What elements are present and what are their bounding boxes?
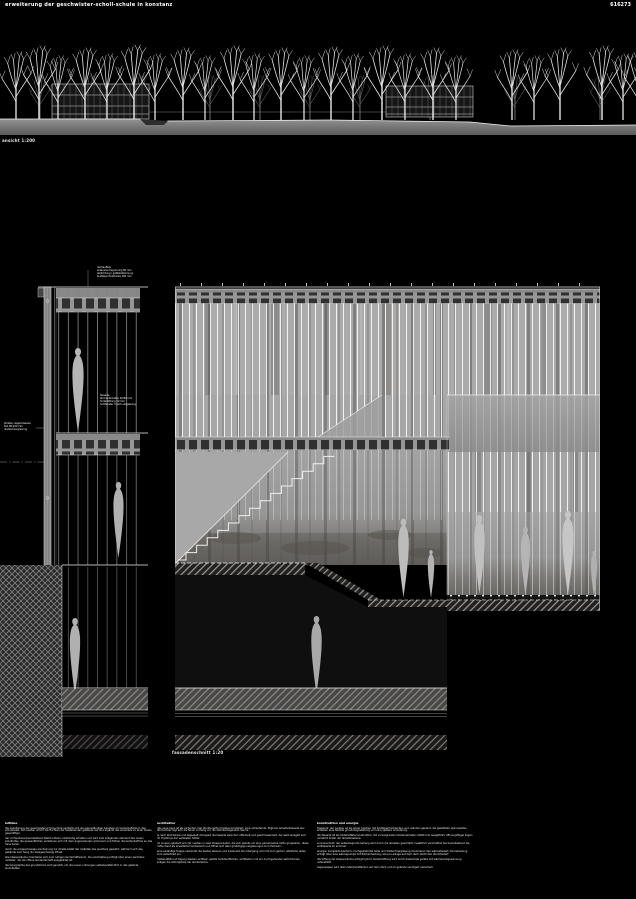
tick-strip — [447, 595, 600, 600]
page-title: erweiterung der geschwister-scholl-schul… — [5, 2, 173, 8]
annotation-line: brettsperrholzdecke 180 mm — [97, 275, 151, 278]
body-paragraph: die lüftung der klassenräume erfolgt hyb… — [317, 859, 475, 865]
column-heading: architektur — [157, 821, 309, 825]
annotation-line: dreifachverglasung — [4, 428, 46, 431]
body-paragraph: die erweiterung der geschwister-scholl-s… — [5, 828, 153, 837]
text-column-architecture: architektur das neue haus ist als einfac… — [157, 821, 309, 897]
annotation-facade: fassadelärchenlamellen 40/60 mmhinterlüf… — [100, 394, 150, 406]
column-heading: konstruktion und energie — [317, 821, 475, 825]
timber-slats-upper — [58, 312, 140, 433]
column-heading: leitidee — [5, 821, 153, 825]
body-paragraph: energie: kompakte bauform, hochgedämmte … — [317, 851, 475, 857]
site-elevation-label: ansicht 1:200 — [2, 138, 35, 143]
body-paragraph: alle klassenräume orientieren sich zum r… — [5, 857, 153, 863]
timber-slats-lower — [58, 455, 140, 565]
facade-field-mid — [175, 395, 447, 437]
body-paragraph: die topographie des grundstücks wird gen… — [5, 865, 153, 871]
site-ground — [0, 119, 636, 135]
facade-section-label: fassadenschnitt 1:20 — [172, 750, 223, 755]
earth-crosshatch — [0, 565, 62, 757]
body-paragraph: durch die eingeschossige erscheinung zur… — [5, 849, 153, 855]
body-paragraph: regenwasser wird über retentionsflächen … — [317, 867, 475, 870]
body-paragraph: der vorhandene baumbestand bleibt nahezu… — [5, 838, 153, 847]
floor-slab — [56, 433, 148, 455]
detail-section-drawing — [0, 268, 170, 768]
foundation-band — [175, 688, 447, 750]
forest-field-right — [447, 452, 600, 512]
body-paragraph: tragwerk: der neubau ist als reiner holz… — [317, 828, 475, 834]
body-paragraph: das neue haus ist als einfacher, klar st… — [157, 828, 309, 834]
ground-mass — [175, 575, 447, 688]
annotation-line: holzfenster 3-fach-verglasung — [100, 403, 150, 406]
facade-field-upper — [175, 304, 600, 396]
annotation-roof: dachaufbauextensive begrünung 80 mmabdic… — [97, 266, 151, 278]
competition-board: erweiterung der geschwister-scholl-schul… — [0, 0, 636, 899]
competition-code: 616273 — [610, 2, 631, 8]
body-paragraph: im inneren gliedert sich der neubau in z… — [157, 843, 309, 849]
person-silhouette — [428, 550, 434, 598]
body-paragraph: die fassade ist als hinterlüftete konstr… — [317, 835, 475, 841]
concrete-panel — [447, 395, 600, 452]
text-column-construction: konstruktion und energie tragwerk: der n… — [317, 821, 475, 897]
site-elevation-drawing — [0, 40, 636, 140]
text-column-concept: leitidee die erweiterung der geschwister… — [5, 821, 153, 897]
body-paragraph: eine einläufige treppe verbindet die bei… — [157, 851, 309, 857]
floor-slab-band — [175, 437, 450, 450]
facade-section-drawing — [175, 283, 600, 758]
column-body: das neue haus ist als einfacher, klar st… — [157, 828, 309, 866]
column-body: die erweiterung der geschwister-scholl-s… — [5, 828, 153, 871]
annotation-mullion: pfosten-riegel-fassadebsh 80/240 mmdreif… — [4, 422, 46, 431]
foundation-slab — [62, 688, 148, 749]
body-paragraph: sonnenschutz: der außenliegende behang w… — [317, 843, 475, 849]
body-paragraph: materialität und fügung bleiben sichtbar… — [157, 859, 309, 865]
column-body: tragwerk: der neubau ist als reiner holz… — [317, 828, 475, 871]
roof-slab-band — [175, 289, 600, 304]
body-paragraph: je nach blickwinkel und tageszeit changi… — [157, 835, 309, 841]
person-silhouette — [398, 519, 409, 598]
